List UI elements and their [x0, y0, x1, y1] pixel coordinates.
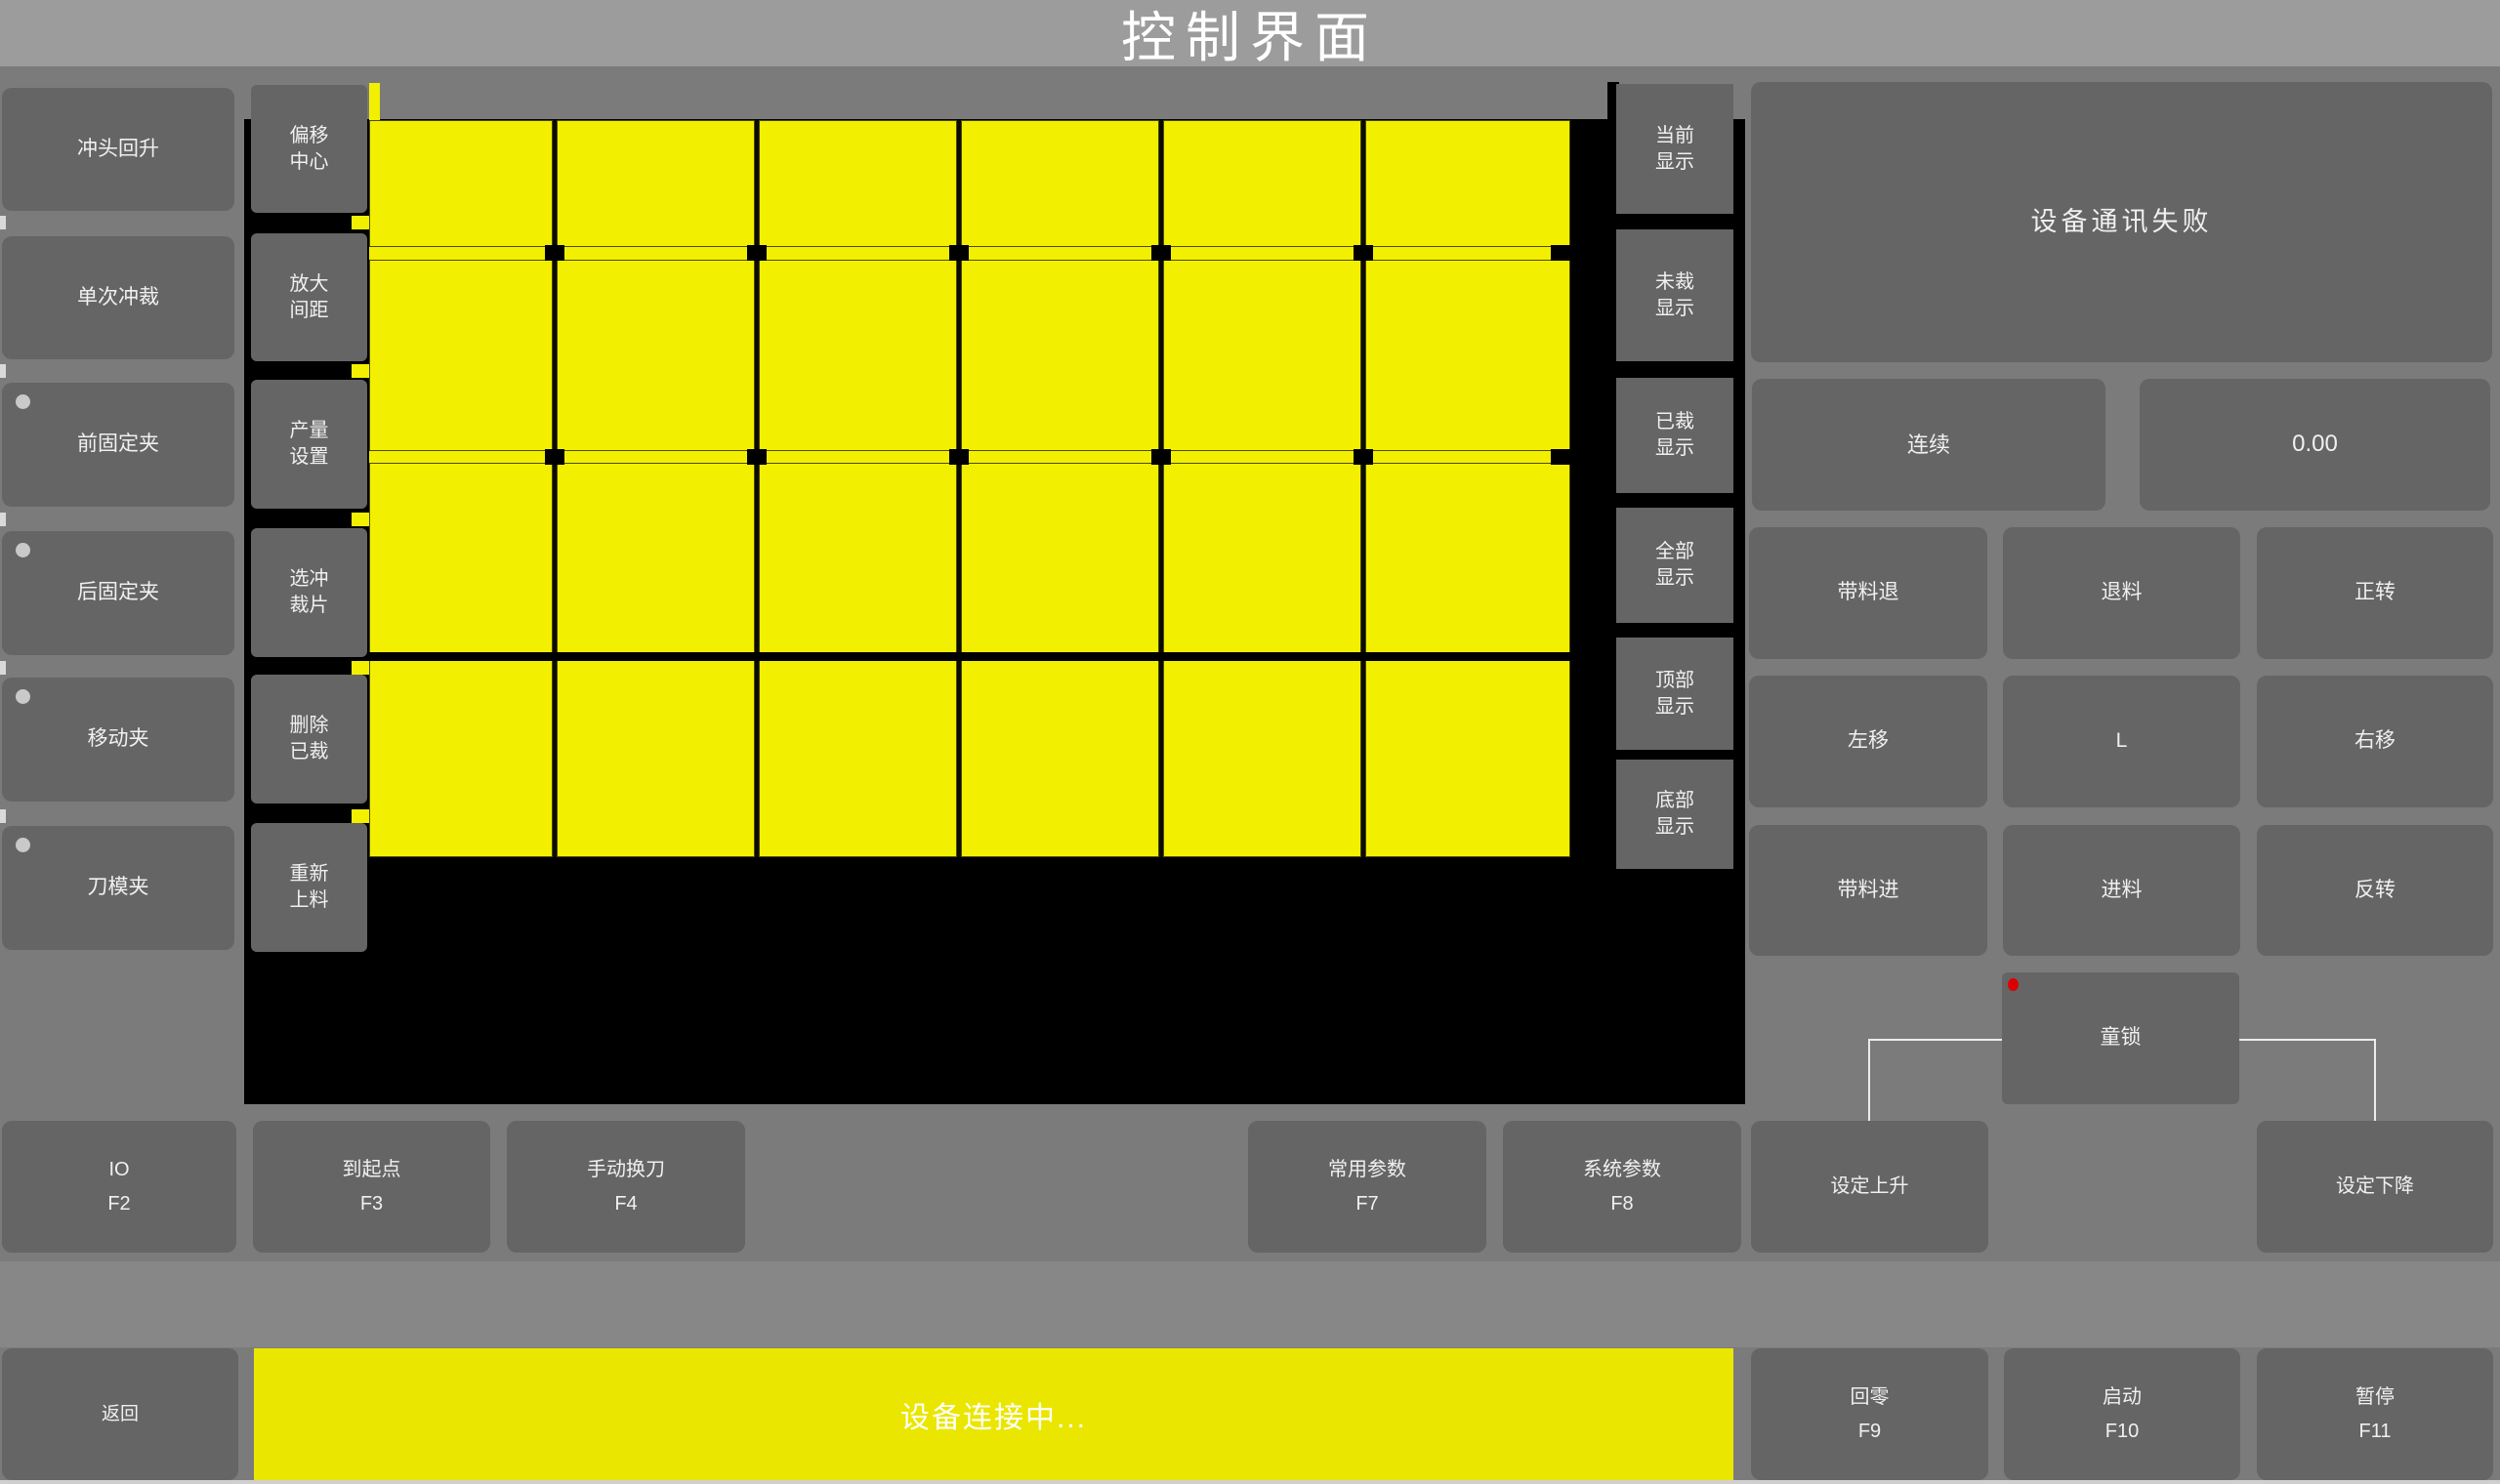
- nest-area[interactable]: [369, 120, 1570, 857]
- piece-gap-vertical: [552, 120, 558, 857]
- state-dot: [16, 689, 30, 704]
- button-system-params-f8[interactable]: 系统参数F8: [1503, 1121, 1741, 1253]
- button-show-top[interactable]: 顶部 显示: [1616, 638, 1733, 750]
- fkey-label: F4: [614, 1191, 637, 1217]
- fkey-label: F3: [360, 1191, 383, 1217]
- button-pause-f11[interactable]: 暂停F11: [2257, 1348, 2493, 1480]
- button-start-f10[interactable]: 启动F10: [2004, 1348, 2240, 1480]
- cut-mark: [949, 449, 969, 465]
- button-show-cut[interactable]: 已裁 显示: [1616, 378, 1733, 493]
- button-unload[interactable]: 退料: [2003, 527, 2240, 659]
- left-edge-tab: [0, 809, 6, 823]
- button-to-origin-f3[interactable]: 到起点F3: [253, 1121, 490, 1253]
- cut-mark: [545, 245, 564, 261]
- button-label: 单次冲裁: [77, 284, 159, 311]
- button-label: 启动: [2103, 1384, 2142, 1411]
- left-edge-tab: [0, 513, 6, 526]
- button-reload-material[interactable]: 重新 上料: [251, 823, 367, 952]
- piece-gap-vertical: [1158, 120, 1164, 857]
- button-label: 系统参数: [1583, 1157, 1661, 1183]
- button-label: 童锁: [2101, 1024, 2142, 1051]
- button-label: 正转: [2354, 579, 2396, 606]
- button-set-lower[interactable]: 设定下降: [2257, 1121, 2493, 1253]
- fkey-label: F7: [1355, 1191, 1378, 1217]
- button-front-clamp[interactable]: 前固定夹: [2, 383, 234, 507]
- left-edge-tab: [0, 661, 6, 675]
- bottom-edge-strip: [0, 1480, 2500, 1484]
- button-label: IO: [108, 1157, 129, 1183]
- button-label: 退料: [2102, 579, 2143, 606]
- button-tape-feed[interactable]: 带料进: [1749, 825, 1987, 956]
- cut-mark: [949, 245, 969, 261]
- button-die-clamp[interactable]: 刀模夹: [2, 826, 234, 950]
- button-label: 进料: [2102, 877, 2143, 904]
- piece-peek-tab: [352, 364, 369, 378]
- button-label: 到起点: [343, 1157, 401, 1183]
- button-select-piece[interactable]: 选冲 裁片: [251, 528, 367, 657]
- button-feed[interactable]: 进料: [2003, 825, 2240, 956]
- button-label: 全部 显示: [1655, 539, 1694, 592]
- button-label: 手动换刀: [587, 1157, 665, 1183]
- button-child-lock[interactable]: 童锁: [2002, 972, 2239, 1104]
- button-label: 回零: [1851, 1384, 1890, 1411]
- button-label: 设定下降: [2336, 1174, 2414, 1200]
- piece-peek-tab: [352, 809, 369, 823]
- button-label: 顶部 显示: [1655, 668, 1694, 721]
- child-lock-indicator-icon: [2008, 978, 2019, 991]
- cut-mark: [747, 245, 767, 261]
- cut-mark: [1551, 449, 1570, 465]
- piece-gap-horizontal-cut: [369, 652, 1570, 661]
- button-label: 刀模夹: [88, 874, 149, 901]
- button-label: 产量 设置: [290, 418, 329, 471]
- material-edge-tab: [369, 83, 380, 120]
- button-label: 常用参数: [1328, 1157, 1406, 1183]
- button-offset-center[interactable]: 偏移 中心: [251, 85, 367, 213]
- value-text: 0.00: [2292, 429, 2338, 460]
- button-punch-up[interactable]: 冲头回升: [2, 88, 234, 211]
- cut-mark: [1354, 449, 1373, 465]
- button-home-f9[interactable]: 回零F9: [1751, 1348, 1988, 1480]
- button-set-rise[interactable]: 设定上升: [1751, 1121, 1988, 1253]
- button-label: 选冲 裁片: [290, 566, 329, 619]
- button-show-uncut[interactable]: 未裁 显示: [1616, 229, 1733, 361]
- cut-mark: [1551, 245, 1570, 261]
- button-label: 前固定夹: [77, 431, 159, 458]
- button-label: 未裁 显示: [1655, 269, 1694, 322]
- button-label: 带料退: [1838, 579, 1899, 606]
- page-title: 控制界面: [1121, 0, 1379, 73]
- button-l[interactable]: L: [2003, 676, 2240, 807]
- button-label: 暂停: [2355, 1384, 2395, 1411]
- piece-peek-tab: [352, 216, 369, 229]
- piece-gap-vertical: [1360, 120, 1366, 857]
- button-label: 重新 上料: [290, 861, 329, 914]
- button-yield-setting[interactable]: 产量 设置: [251, 380, 367, 509]
- button-label: 带料进: [1838, 877, 1899, 904]
- left-edge-tab: [0, 216, 6, 229]
- button-label: 连续: [1907, 431, 1950, 460]
- button-enlarge-gap[interactable]: 放大 间距: [251, 233, 367, 361]
- button-back[interactable]: 返回: [2, 1348, 238, 1480]
- left-edge-tab: [0, 364, 6, 378]
- button-move-right[interactable]: 右移: [2257, 676, 2493, 807]
- button-label: 底部 显示: [1655, 788, 1694, 841]
- button-tape-back[interactable]: 带料退: [1749, 527, 1987, 659]
- button-label: 放大 间距: [290, 271, 329, 324]
- button-label: 后固定夹: [77, 579, 159, 606]
- button-common-params-f7[interactable]: 常用参数F7: [1248, 1121, 1486, 1253]
- button-delete-cut[interactable]: 删除 已裁: [251, 675, 367, 804]
- button-show-bottom[interactable]: 底部 显示: [1616, 760, 1733, 869]
- button-label: 移动夹: [88, 725, 149, 753]
- status-bar: 设备连接中...: [254, 1348, 1733, 1480]
- fkey-label: F9: [1858, 1419, 1881, 1445]
- button-single-punch[interactable]: 单次冲裁: [2, 236, 234, 359]
- cut-mark: [1151, 449, 1171, 465]
- button-label: L: [2116, 727, 2128, 755]
- button-label: 冲头回升: [77, 136, 159, 163]
- button-io-f2[interactable]: IOF2: [2, 1121, 236, 1253]
- button-forward-rotate[interactable]: 正转: [2257, 527, 2493, 659]
- piece-peek-tab: [352, 661, 369, 675]
- button-label: 当前 显示: [1655, 123, 1694, 176]
- button-label: 左移: [1848, 727, 1889, 755]
- button-label: 设定上升: [1831, 1174, 1909, 1200]
- state-dot: [16, 543, 30, 557]
- device-message-panel: 设备通讯失败: [1751, 82, 2492, 362]
- button-continuous-mode[interactable]: 连续: [1752, 379, 2105, 511]
- title-bar: 控制界面: [0, 0, 2500, 66]
- value-display: 0.00: [2140, 379, 2490, 511]
- cut-mark: [1151, 245, 1171, 261]
- cut-mark: [1354, 245, 1373, 261]
- cut-mark: [747, 449, 767, 465]
- fkey-label: F11: [2359, 1419, 2392, 1445]
- button-label: 反转: [2354, 877, 2396, 904]
- button-label: 已裁 显示: [1655, 409, 1694, 462]
- button-label: 右移: [2354, 727, 2396, 755]
- separator-band: [0, 1261, 2500, 1347]
- button-label: 偏移 中心: [290, 123, 329, 176]
- button-show-current[interactable]: 当前 显示: [1616, 84, 1733, 214]
- fkey-label: F10: [2105, 1419, 2139, 1445]
- button-reverse-rotate[interactable]: 反转: [2257, 825, 2493, 956]
- piece-gap-vertical: [754, 120, 760, 857]
- button-label: 删除 已裁: [290, 713, 329, 765]
- state-dot: [16, 838, 30, 852]
- device-message: 设备通讯失败: [2031, 204, 2213, 239]
- button-show-all[interactable]: 全部 显示: [1616, 508, 1733, 623]
- button-move-left[interactable]: 左移: [1749, 676, 1987, 807]
- cut-mark: [545, 449, 564, 465]
- button-label: 返回: [102, 1402, 139, 1427]
- fkey-label: F2: [107, 1191, 130, 1217]
- piece-gap-vertical: [956, 120, 962, 857]
- button-rear-clamp[interactable]: 后固定夹: [2, 531, 234, 655]
- state-dot: [16, 394, 30, 409]
- button-manual-tool-change-f4[interactable]: 手动换刀F4: [507, 1121, 745, 1253]
- piece-peek-tab: [352, 513, 369, 526]
- status-text: 设备连接中...: [900, 1393, 1087, 1436]
- button-moving-clamp[interactable]: 移动夹: [2, 678, 234, 802]
- fkey-label: F8: [1610, 1191, 1633, 1217]
